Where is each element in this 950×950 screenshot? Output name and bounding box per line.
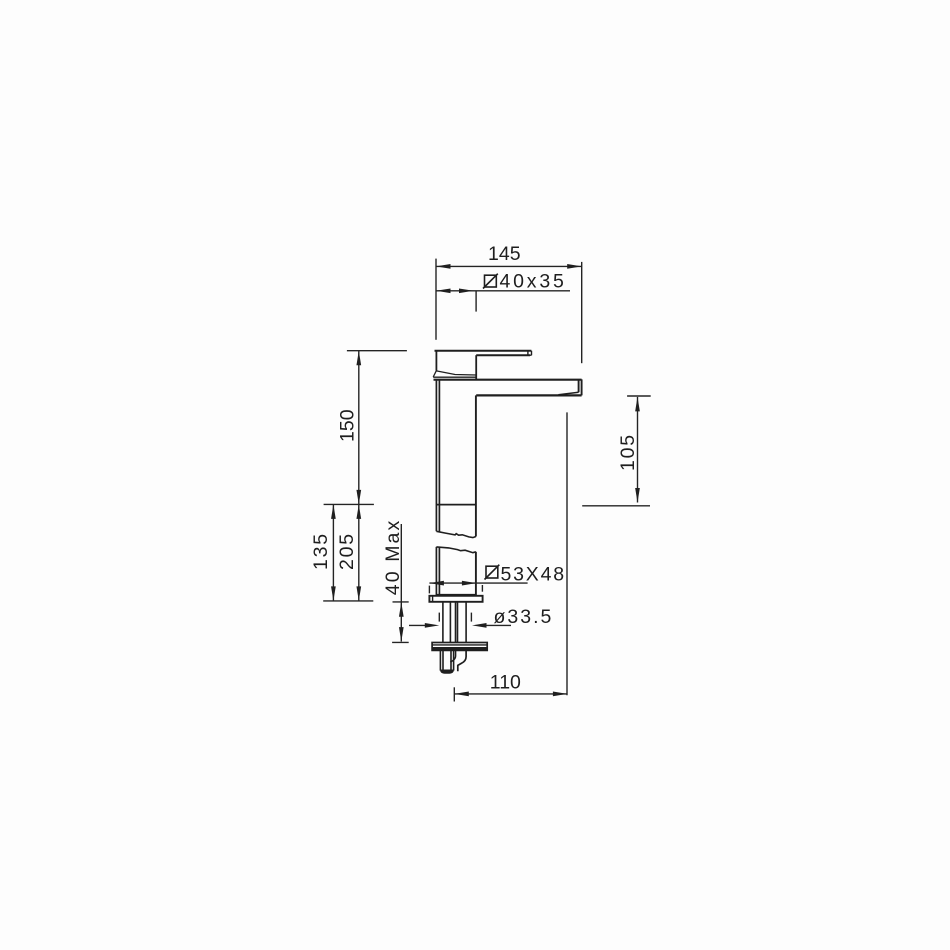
svg-text:40x35: 40x35 xyxy=(500,270,567,292)
svg-text:145: 145 xyxy=(488,243,521,265)
svg-text:53X48: 53X48 xyxy=(501,563,566,585)
svg-text:ø33.5: ø33.5 xyxy=(494,606,554,628)
svg-text:150: 150 xyxy=(337,409,359,442)
svg-text:135: 135 xyxy=(310,532,332,570)
svg-text:205: 205 xyxy=(336,532,358,570)
svg-text:110: 110 xyxy=(490,672,521,694)
svg-text:105: 105 xyxy=(617,433,639,471)
svg-text:40 Max: 40 Max xyxy=(382,519,404,596)
